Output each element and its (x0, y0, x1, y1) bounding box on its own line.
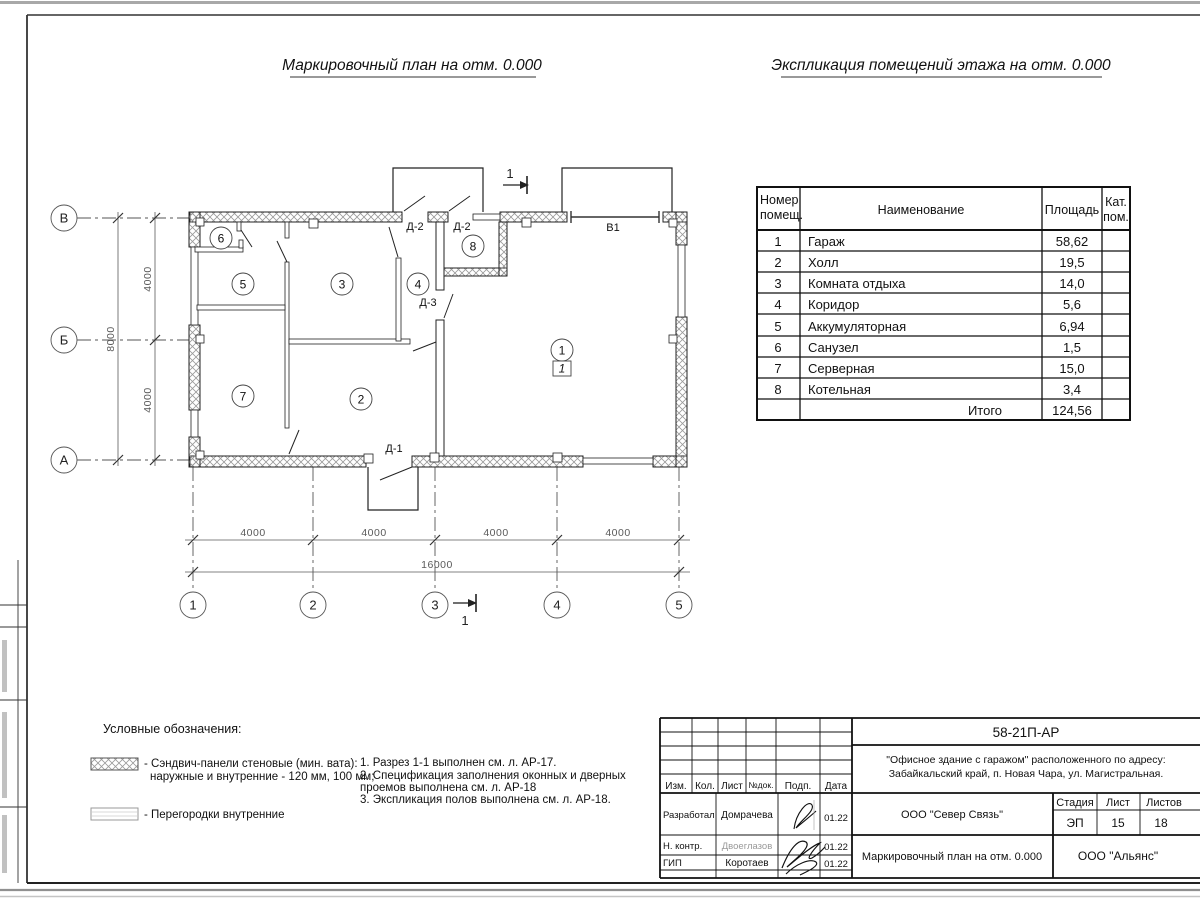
date-n-kontr: 01.22 (824, 842, 848, 853)
cell-area: 58,62 (1056, 234, 1089, 249)
section-number: 1 (461, 613, 468, 628)
door-label-d3: Д-3 (419, 297, 436, 309)
cell-num: 8 (774, 382, 781, 397)
dim-left-upper: 4000 (142, 266, 154, 291)
boiler-room-wall (499, 222, 507, 276)
stadia-value: ЭП (1066, 816, 1083, 830)
legend: Условные обозначения: - Сэндвич-панели с… (91, 722, 626, 821)
section-mark-bottom: 1 (453, 594, 477, 628)
room-numbers: 6 5 3 4 8 7 2 1 1 (210, 227, 573, 410)
stadia-label: Стадия (1056, 797, 1094, 809)
cell-area: 6,94 (1059, 319, 1084, 334)
partitions (195, 222, 410, 428)
total-label: Итого (968, 403, 1002, 418)
col-kol: Кол. (695, 781, 715, 792)
room-number: 6 (218, 232, 225, 246)
illegible-vertical-text (2, 640, 7, 692)
cell-area: 5,6 (1063, 297, 1081, 312)
left-approval-strip (0, 560, 27, 883)
sandwich-panel-symbol (91, 758, 138, 770)
table-row: 1 Гараж 58,62 2 Холл 19,5 3 Комната отды… (774, 234, 1088, 397)
col-header-number: Номер (760, 193, 799, 207)
cell-num: 4 (774, 297, 781, 312)
total-area: 124,56 (1052, 403, 1092, 418)
cell-num: 5 (774, 319, 781, 334)
cell-area: 1,5 (1063, 340, 1081, 355)
col-header-name: Наименование (878, 203, 965, 217)
col-podp: Подп. (785, 781, 812, 792)
door-label-d2b: Д-2 (453, 221, 470, 233)
org-mid: ООО "Север Связь" (901, 809, 1003, 821)
room-number: 8 (470, 240, 477, 254)
org-right: ООО "Альянс" (1078, 849, 1158, 863)
notes: 1. Разрез 1-1 выполнен см. л. АР-17. 2. … (360, 757, 626, 806)
cell-name: Котельная (808, 382, 871, 397)
note-2: 2. Спецификация заполнения оконных и две… (360, 770, 626, 782)
dim-left-total: 8000 (105, 326, 117, 351)
illegible-vertical-text (2, 712, 7, 798)
col-izm: Изм. (665, 781, 686, 792)
axis-row-a: А (60, 453, 69, 468)
cell-name: Коридор (808, 297, 859, 312)
cell-name: Гараж (808, 234, 845, 249)
note-1: 1. Разрез 1-1 выполнен см. л. АР-17. (360, 757, 557, 769)
date-gip: 01.22 (824, 859, 848, 870)
cell-name: Аккумуляторная (808, 319, 906, 334)
name-gip: Коротаев (725, 858, 768, 869)
cell-num: 2 (774, 255, 781, 270)
col-ndok: №док. (749, 780, 774, 790)
section-number: 1 (506, 166, 513, 181)
address-line2: Забайкальский край, п. Новая Чара, ул. М… (889, 768, 1164, 780)
col-header-cat2: пом. (1103, 210, 1129, 224)
illegible-vertical-text (2, 815, 7, 873)
dim-bottom-1: 4000 (240, 527, 265, 539)
axis-col-5: 5 (675, 598, 682, 613)
floor-type-mark: 1 (559, 362, 566, 376)
partition-symbol (91, 808, 138, 820)
role-n-kontr: Н. контр. (663, 841, 702, 852)
role-gip: ГИП (663, 858, 682, 869)
explication-title: Экспликация помещений этажа на отм. 0.00… (771, 57, 1111, 74)
listov-label: Листов (1146, 797, 1182, 809)
col-header-cat: Кат. (1105, 195, 1127, 209)
plan-title: Маркировочный план на отм. 0.000 (282, 57, 542, 74)
room-number: 7 (240, 390, 247, 404)
legend-sandwich-line1: - Сэндвич-панели стеновые (мин. вата): (144, 758, 358, 770)
cell-name: Серверная (808, 361, 875, 376)
axis-col-2: 2 (309, 598, 316, 613)
room-number: 4 (415, 278, 422, 292)
explication-table: Номер помещ. Наименование Площадь Кат. п… (757, 187, 1130, 420)
room-number: 2 (358, 393, 365, 407)
listov-value: 18 (1154, 816, 1168, 830)
room-number: 1 (559, 344, 566, 358)
room-number: 5 (240, 278, 247, 292)
dim-bottom-3: 4000 (483, 527, 508, 539)
sheet-subtitle: Маркировочный план на отм. 0.000 (862, 851, 1042, 863)
cell-name: Санузел (808, 340, 859, 355)
cell-num: 1 (774, 234, 781, 249)
room-number: 3 (339, 278, 346, 292)
sheet-titles: Маркировочный план на отм. 0.000 Эксплик… (282, 57, 1111, 77)
dim-bottom-total: 16000 (421, 559, 453, 571)
doc-number: 58-21П-АР (993, 725, 1060, 740)
cell-name: Комната отдыха (808, 276, 906, 291)
drawing-sheet: Маркировочный план на отм. 0.000 Эксплик… (0, 0, 1200, 900)
signature-razrabotal (794, 804, 816, 829)
address-line1: "Офисное здание с гаражом" расположенног… (886, 754, 1165, 766)
title-block: Изм. Кол. Лист №док. Подп. Дата Разработ… (660, 718, 1200, 878)
section-mark-top: 1 (503, 166, 529, 194)
cell-num: 7 (774, 361, 781, 376)
dim-left-lower: 4000 (142, 387, 154, 412)
axis-row-b: Б (60, 333, 69, 348)
legend-sandwich-line2: наружные и внутренние - 120 мм, 100 мм; (150, 771, 374, 783)
name-razrabotal: Домрачева (721, 810, 773, 821)
cell-area: 3,4 (1063, 382, 1081, 397)
legend-partitions: - Перегородки внутренние (144, 809, 285, 821)
role-razrabotal: Разработал (663, 810, 715, 821)
date-razrabotal: 01.22 (824, 813, 848, 824)
cell-area: 15,0 (1059, 361, 1084, 376)
axis-col-3: 3 (431, 598, 438, 613)
legend-heading: Условные обозначения: (103, 722, 242, 736)
axis-col-4: 4 (553, 598, 560, 613)
col-header-number2: помещ. (760, 208, 803, 222)
list-label: Лист (1106, 797, 1130, 809)
door-label-d1: Д-1 (385, 443, 402, 455)
cell-name: Холл (808, 255, 839, 270)
cell-num: 3 (774, 276, 781, 291)
axis-row-v: В (60, 211, 69, 226)
signatures (782, 800, 825, 875)
dim-bottom-2: 4000 (361, 527, 386, 539)
note-3: 3. Экспликация полов выполнена см. л. АР… (360, 794, 611, 806)
cell-area: 14,0 (1059, 276, 1084, 291)
axis-col-1: 1 (189, 598, 196, 613)
name-n-kontr: Двоеглазов (722, 841, 773, 852)
door-label-d2a: Д-2 (406, 221, 423, 233)
col-list: Лист (721, 781, 743, 792)
entrance-porch (368, 467, 418, 510)
note-2b: проемов выполнена см. л. АР-18 (360, 782, 536, 794)
cell-num: 6 (774, 340, 781, 355)
list-value: 15 (1111, 816, 1125, 830)
gate-label-v1: В1 (606, 222, 619, 234)
col-header-area: Площадь (1045, 203, 1099, 217)
cell-area: 19,5 (1059, 255, 1084, 270)
dim-bottom-4: 4000 (605, 527, 630, 539)
walls-interior-thick (436, 222, 444, 456)
col-data: Дата (825, 781, 848, 792)
floor-plan: 4000 4000 8000 4000 4000 4000 4000 16000… (51, 166, 692, 628)
boiler-room-wall (444, 268, 507, 276)
